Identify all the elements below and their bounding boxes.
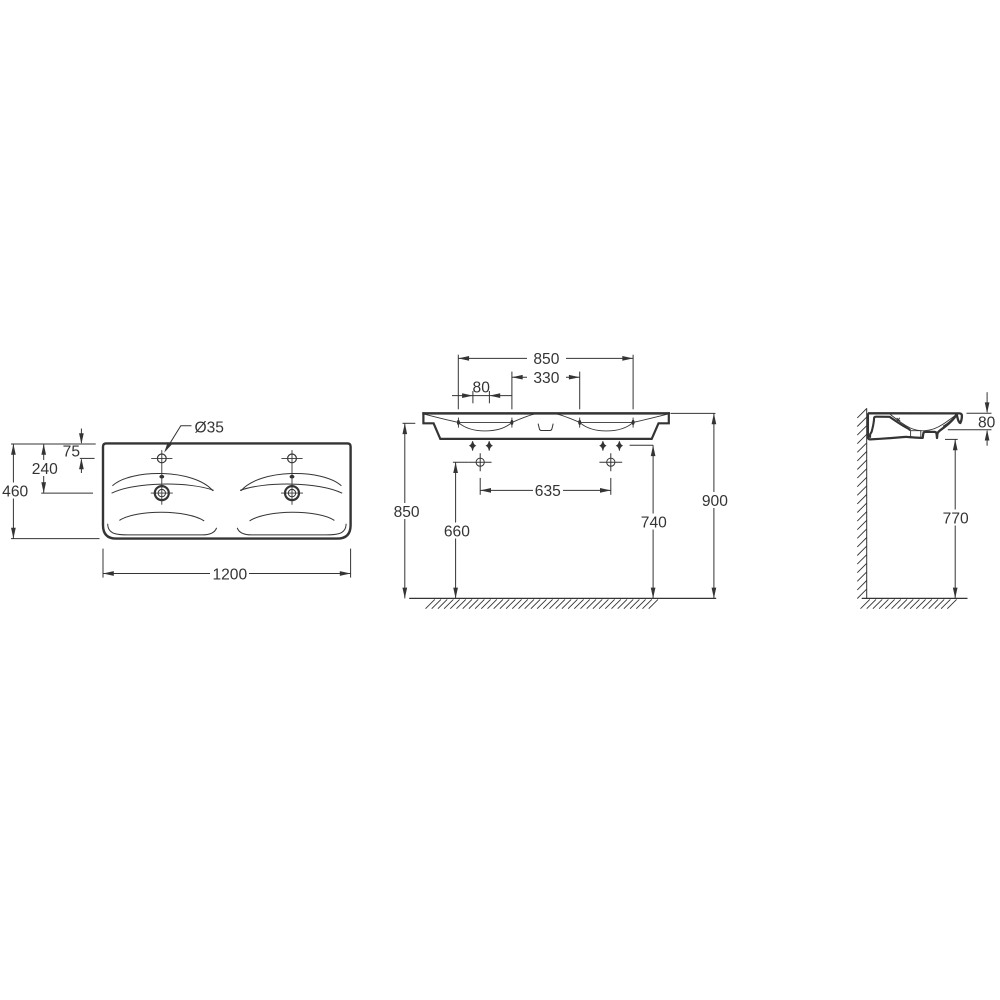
svg-text:660: 660 — [444, 524, 470, 541]
svg-text:850: 850 — [394, 504, 420, 521]
svg-text:740: 740 — [641, 515, 667, 532]
svg-text:900: 900 — [702, 493, 728, 510]
svg-text:770: 770 — [943, 511, 969, 528]
svg-text:80: 80 — [473, 379, 491, 396]
svg-text:80: 80 — [978, 414, 996, 431]
svg-text:1200: 1200 — [212, 566, 247, 583]
svg-text:330: 330 — [533, 370, 559, 387]
svg-text:Ø35: Ø35 — [195, 419, 225, 436]
svg-text:850: 850 — [533, 351, 559, 368]
svg-text:75: 75 — [63, 444, 81, 461]
svg-text:460: 460 — [2, 484, 28, 501]
svg-text:635: 635 — [535, 483, 561, 500]
svg-text:240: 240 — [32, 461, 58, 478]
